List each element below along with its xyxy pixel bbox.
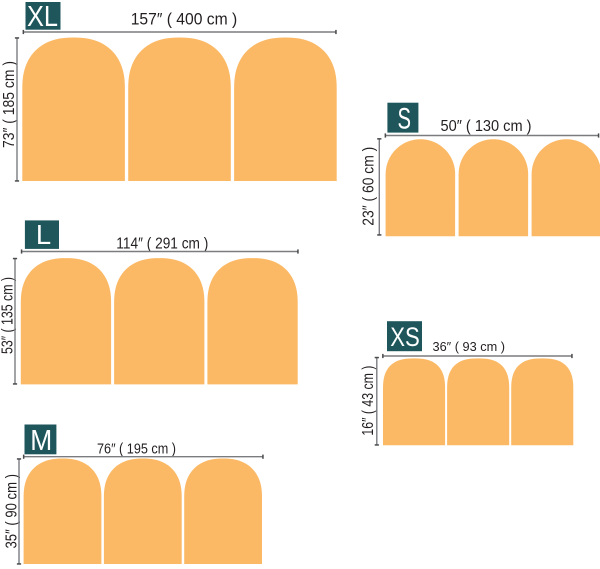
svg-text:114″ ( 291 cm ): 114″ ( 291 cm ) (116, 236, 208, 253)
svg-text:76″ ( 195 cm ): 76″ ( 195 cm ) (97, 442, 176, 458)
svg-text:53″ ( 135 cm ): 53″ ( 135 cm ) (0, 277, 17, 354)
svg-text:73″ ( 185 cm ): 73″ ( 185 cm ) (1, 61, 18, 148)
svg-text:23″ ( 60 cm ): 23″ ( 60 cm ) (360, 147, 377, 226)
svg-text:S: S (397, 102, 411, 135)
svg-text:L: L (36, 219, 51, 250)
svg-text:36″ ( 93 cm ): 36″ ( 93 cm ) (433, 339, 506, 354)
svg-text:XL: XL (27, 1, 58, 33)
svg-text:M: M (30, 425, 52, 457)
svg-text:50″ ( 130 cm ): 50″ ( 130 cm ) (441, 118, 532, 135)
svg-text:157″ ( 400 cm ): 157″ ( 400 cm ) (131, 11, 238, 29)
svg-text:XS: XS (390, 322, 420, 352)
svg-text:16″ ( 43 cm ): 16″ ( 43 cm ) (360, 366, 377, 436)
svg-text:35″ ( 90 cm ): 35″ ( 90 cm ) (4, 474, 21, 549)
